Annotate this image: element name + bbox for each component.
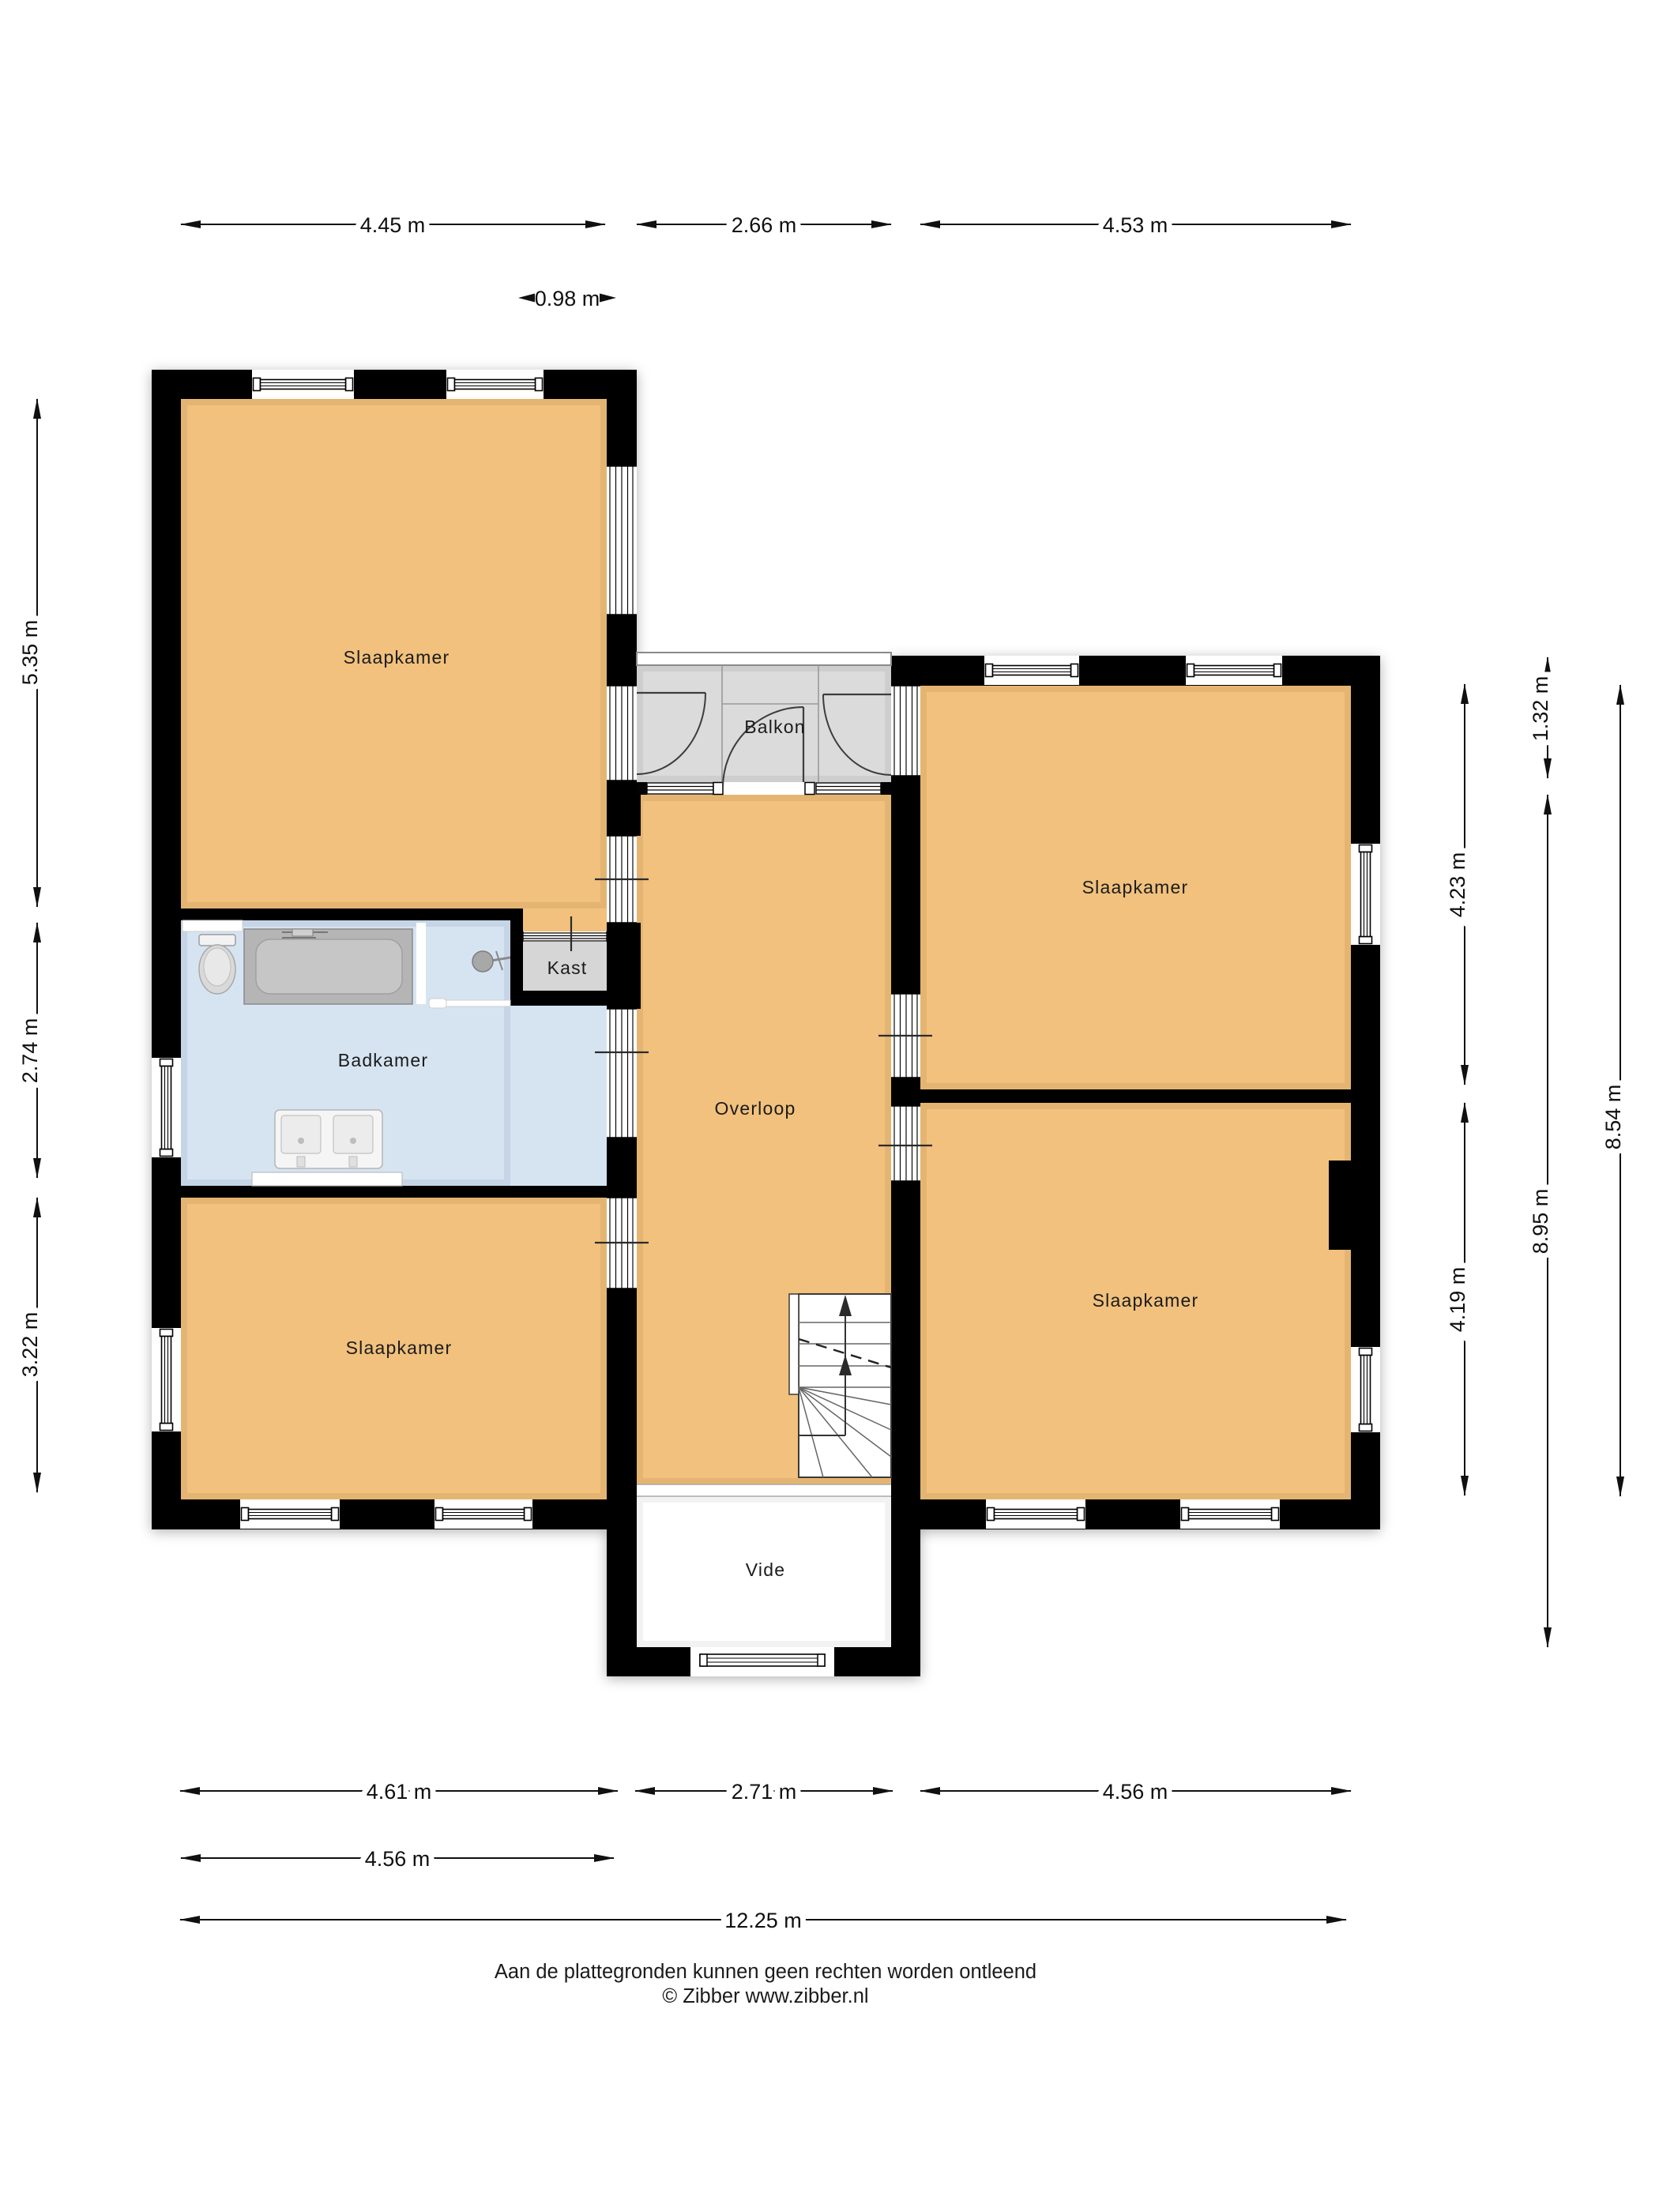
svg-text:Balkon: Balkon [744,717,806,737]
svg-text:Aan de plattegronden kunnen ge: Aan de plattegronden kunnen geen rechten… [495,1961,1036,1983]
svg-text:Slaapkamer: Slaapkamer [346,1337,453,1358]
svg-text:8.95 m: 8.95 m [1529,1189,1552,1255]
svg-text:4.56 m: 4.56 m [1103,1780,1168,1804]
svg-text:4.19 m: 4.19 m [1446,1267,1469,1333]
svg-text:2.66 m: 2.66 m [732,213,797,237]
svg-text:1.32 m: 1.32 m [1529,676,1552,742]
svg-text:Kast: Kast [547,957,588,978]
svg-text:3.22 m: 3.22 m [18,1312,42,1378]
svg-text:2.74 m: 2.74 m [18,1018,42,1084]
svg-text:4.23 m: 4.23 m [1446,852,1469,918]
svg-text:0.98 m: 0.98 m [535,287,600,310]
svg-text:4.45 m: 4.45 m [360,213,426,237]
svg-text:Slaapkamer: Slaapkamer [1093,1290,1199,1311]
svg-text:4.56 m: 4.56 m [365,1847,431,1871]
svg-text:4.53 m: 4.53 m [1103,213,1168,237]
svg-text:8.54 m: 8.54 m [1601,1085,1625,1150]
svg-text:Badkamer: Badkamer [338,1050,428,1070]
svg-text:Slaapkamer: Slaapkamer [1082,877,1189,897]
svg-text:Overloop: Overloop [715,1098,796,1119]
svg-text:4.61 m: 4.61 m [367,1780,432,1804]
svg-text:12.25 m: 12.25 m [724,1909,802,1932]
svg-text:© Zibber www.zibber.nl: © Zibber www.zibber.nl [662,1985,868,2007]
svg-text:Vide: Vide [746,1559,785,1580]
svg-text:2.71 m: 2.71 m [732,1780,797,1804]
svg-text:5.35 m: 5.35 m [18,620,42,686]
svg-text:Slaapkamer: Slaapkamer [344,647,450,668]
